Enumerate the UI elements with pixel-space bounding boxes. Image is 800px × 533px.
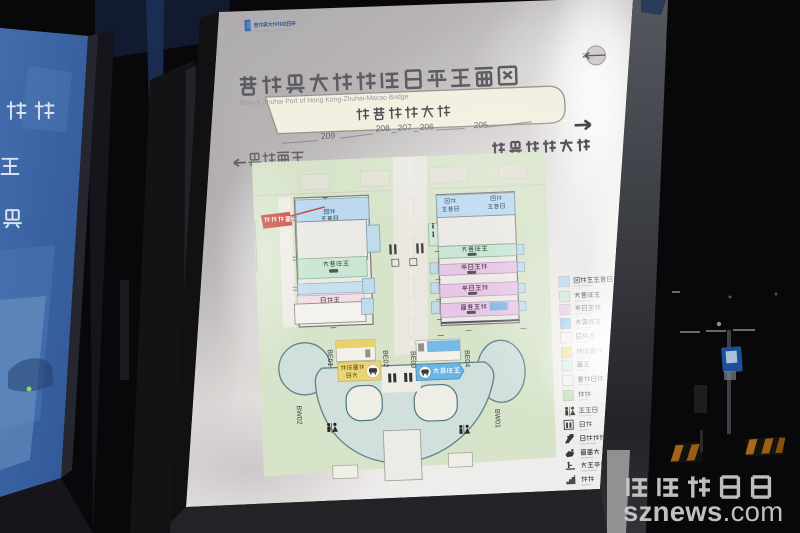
svg-text:sznews.com: sznews.com xyxy=(623,496,783,527)
